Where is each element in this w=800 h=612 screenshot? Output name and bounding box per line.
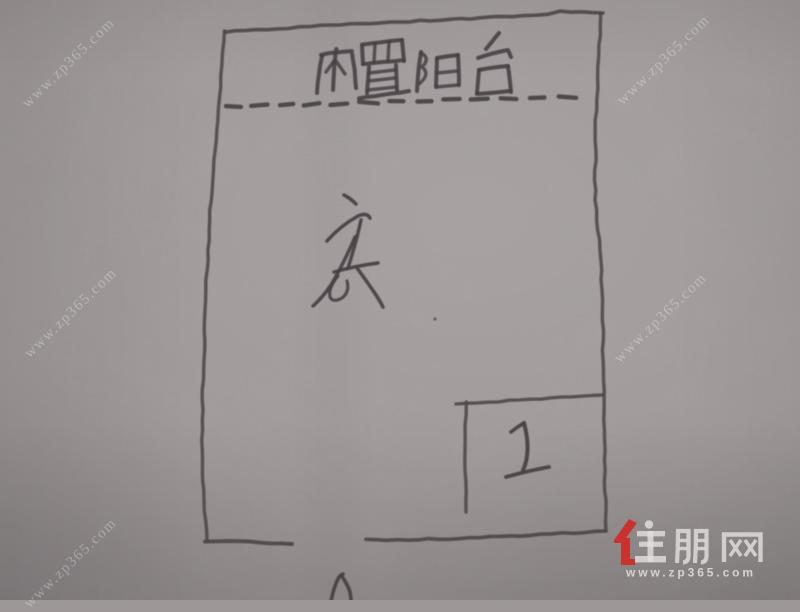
svg-text:www.zp365.com: www.zp365.com <box>625 566 756 580</box>
